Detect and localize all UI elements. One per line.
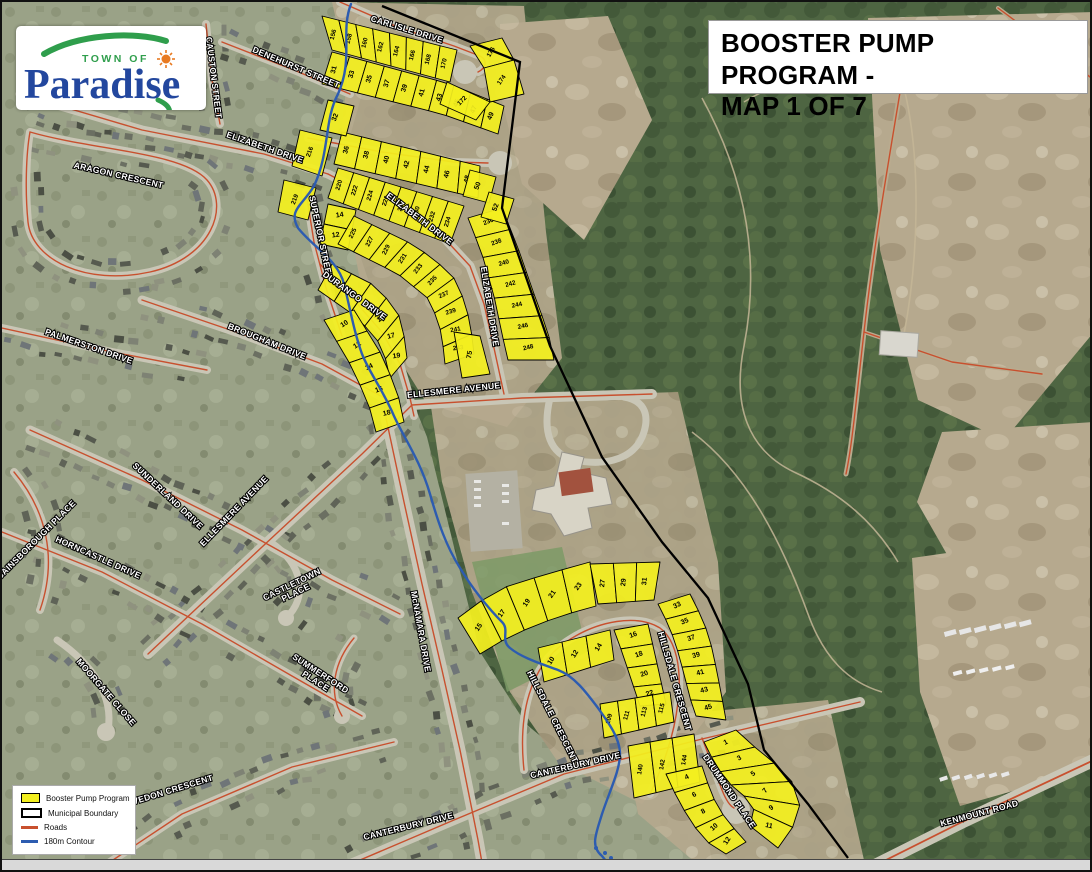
lot-number: 29 <box>620 578 628 587</box>
legend-swatch-icon <box>21 793 40 803</box>
legend-item: 180m Contour <box>21 837 127 846</box>
legend-label: Booster Pump Program <box>46 794 130 803</box>
logo-paradise: Paradise <box>24 62 180 108</box>
map-canvas: 1561581601621641661681703133353739414345… <box>2 2 1092 872</box>
legend: Booster Pump ProgramMunicipal BoundaryRo… <box>12 785 136 855</box>
sheet-margin <box>2 859 1092 872</box>
legend-item: Roads <box>21 823 127 832</box>
lot-number: 31 <box>641 577 649 586</box>
legend-item: Booster Pump Program <box>21 793 127 803</box>
legend-label: 180m Contour <box>44 837 95 846</box>
lot-number: 27 <box>599 579 607 588</box>
lot-number: 14 <box>335 211 344 219</box>
legend-swatch-icon <box>21 840 38 844</box>
legend-label: Roads <box>44 823 67 832</box>
legend-swatch-icon <box>21 808 42 818</box>
logo-swoosh-icon <box>44 35 166 54</box>
map-sheet: 1561581601621641661681703133353739414345… <box>0 0 1092 872</box>
map-title-line2: MAP 1 OF 7 <box>721 91 1075 123</box>
map-title: BOOSTER PUMP PROGRAM - MAP 1 OF 7 <box>708 20 1088 94</box>
map-title-line1: BOOSTER PUMP PROGRAM - <box>721 28 1075 91</box>
legend-label: Municipal Boundary <box>48 809 118 818</box>
lot-number: 19 <box>392 352 401 360</box>
town-of-paradise-logo: TOWN OF Paradise <box>16 26 206 110</box>
legend-item: Municipal Boundary <box>21 808 127 818</box>
lot-number: 12 <box>331 231 340 239</box>
legend-swatch-icon <box>21 826 38 829</box>
lot-number: 75 <box>466 350 474 359</box>
